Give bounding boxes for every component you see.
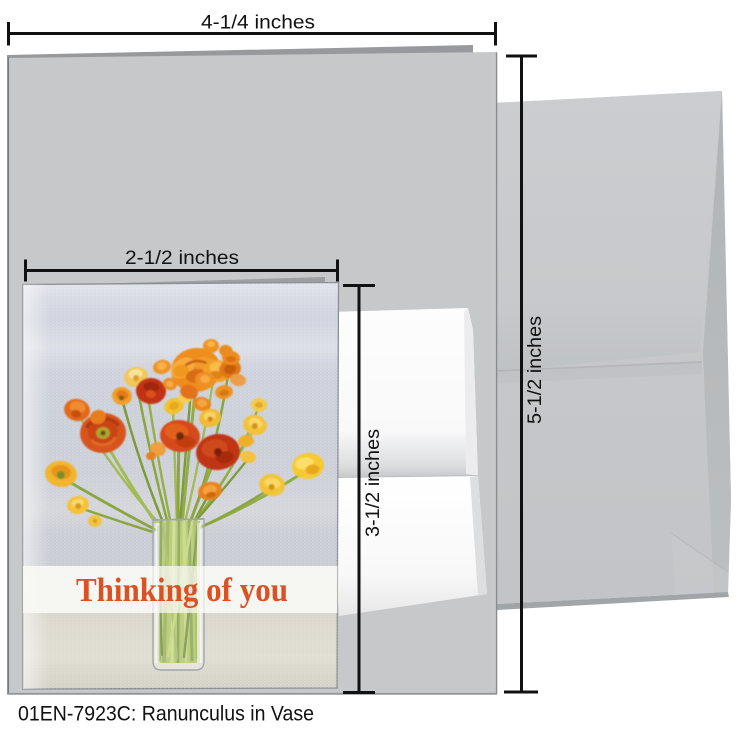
svg-text:4-1/4 inches: 4-1/4 inches <box>201 13 315 34</box>
svg-text:5-1/2 inches: 5-1/2 inches <box>525 316 546 424</box>
svg-text:3-1/2 inches: 3-1/2 inches <box>363 429 384 537</box>
svg-text:Thinking of you: Thinking of you <box>76 572 288 609</box>
svg-text:01EN-7923C: Ranunculus in Vase: 01EN-7923C: Ranunculus in Vase <box>18 702 314 726</box>
svg-text:2-1/2 inches: 2-1/2 inches <box>125 248 239 269</box>
